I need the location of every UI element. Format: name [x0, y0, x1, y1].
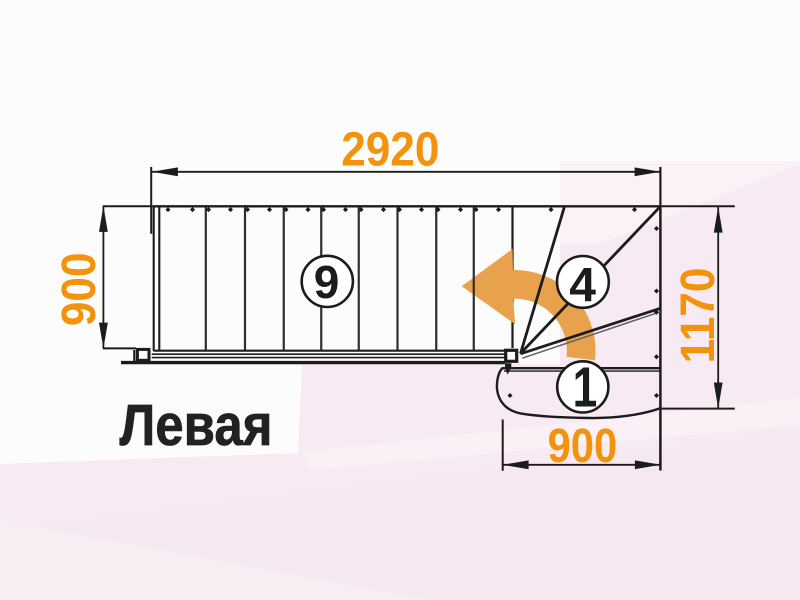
svg-text:Левая: Левая — [119, 393, 272, 458]
svg-text:1170: 1170 — [670, 268, 724, 364]
svg-text:9: 9 — [314, 256, 340, 308]
svg-text:2920: 2920 — [341, 122, 439, 176]
svg-text:900: 900 — [548, 418, 618, 472]
svg-text:900: 900 — [51, 252, 105, 326]
svg-text:1: 1 — [573, 355, 598, 419]
svg-text:4: 4 — [569, 259, 596, 312]
